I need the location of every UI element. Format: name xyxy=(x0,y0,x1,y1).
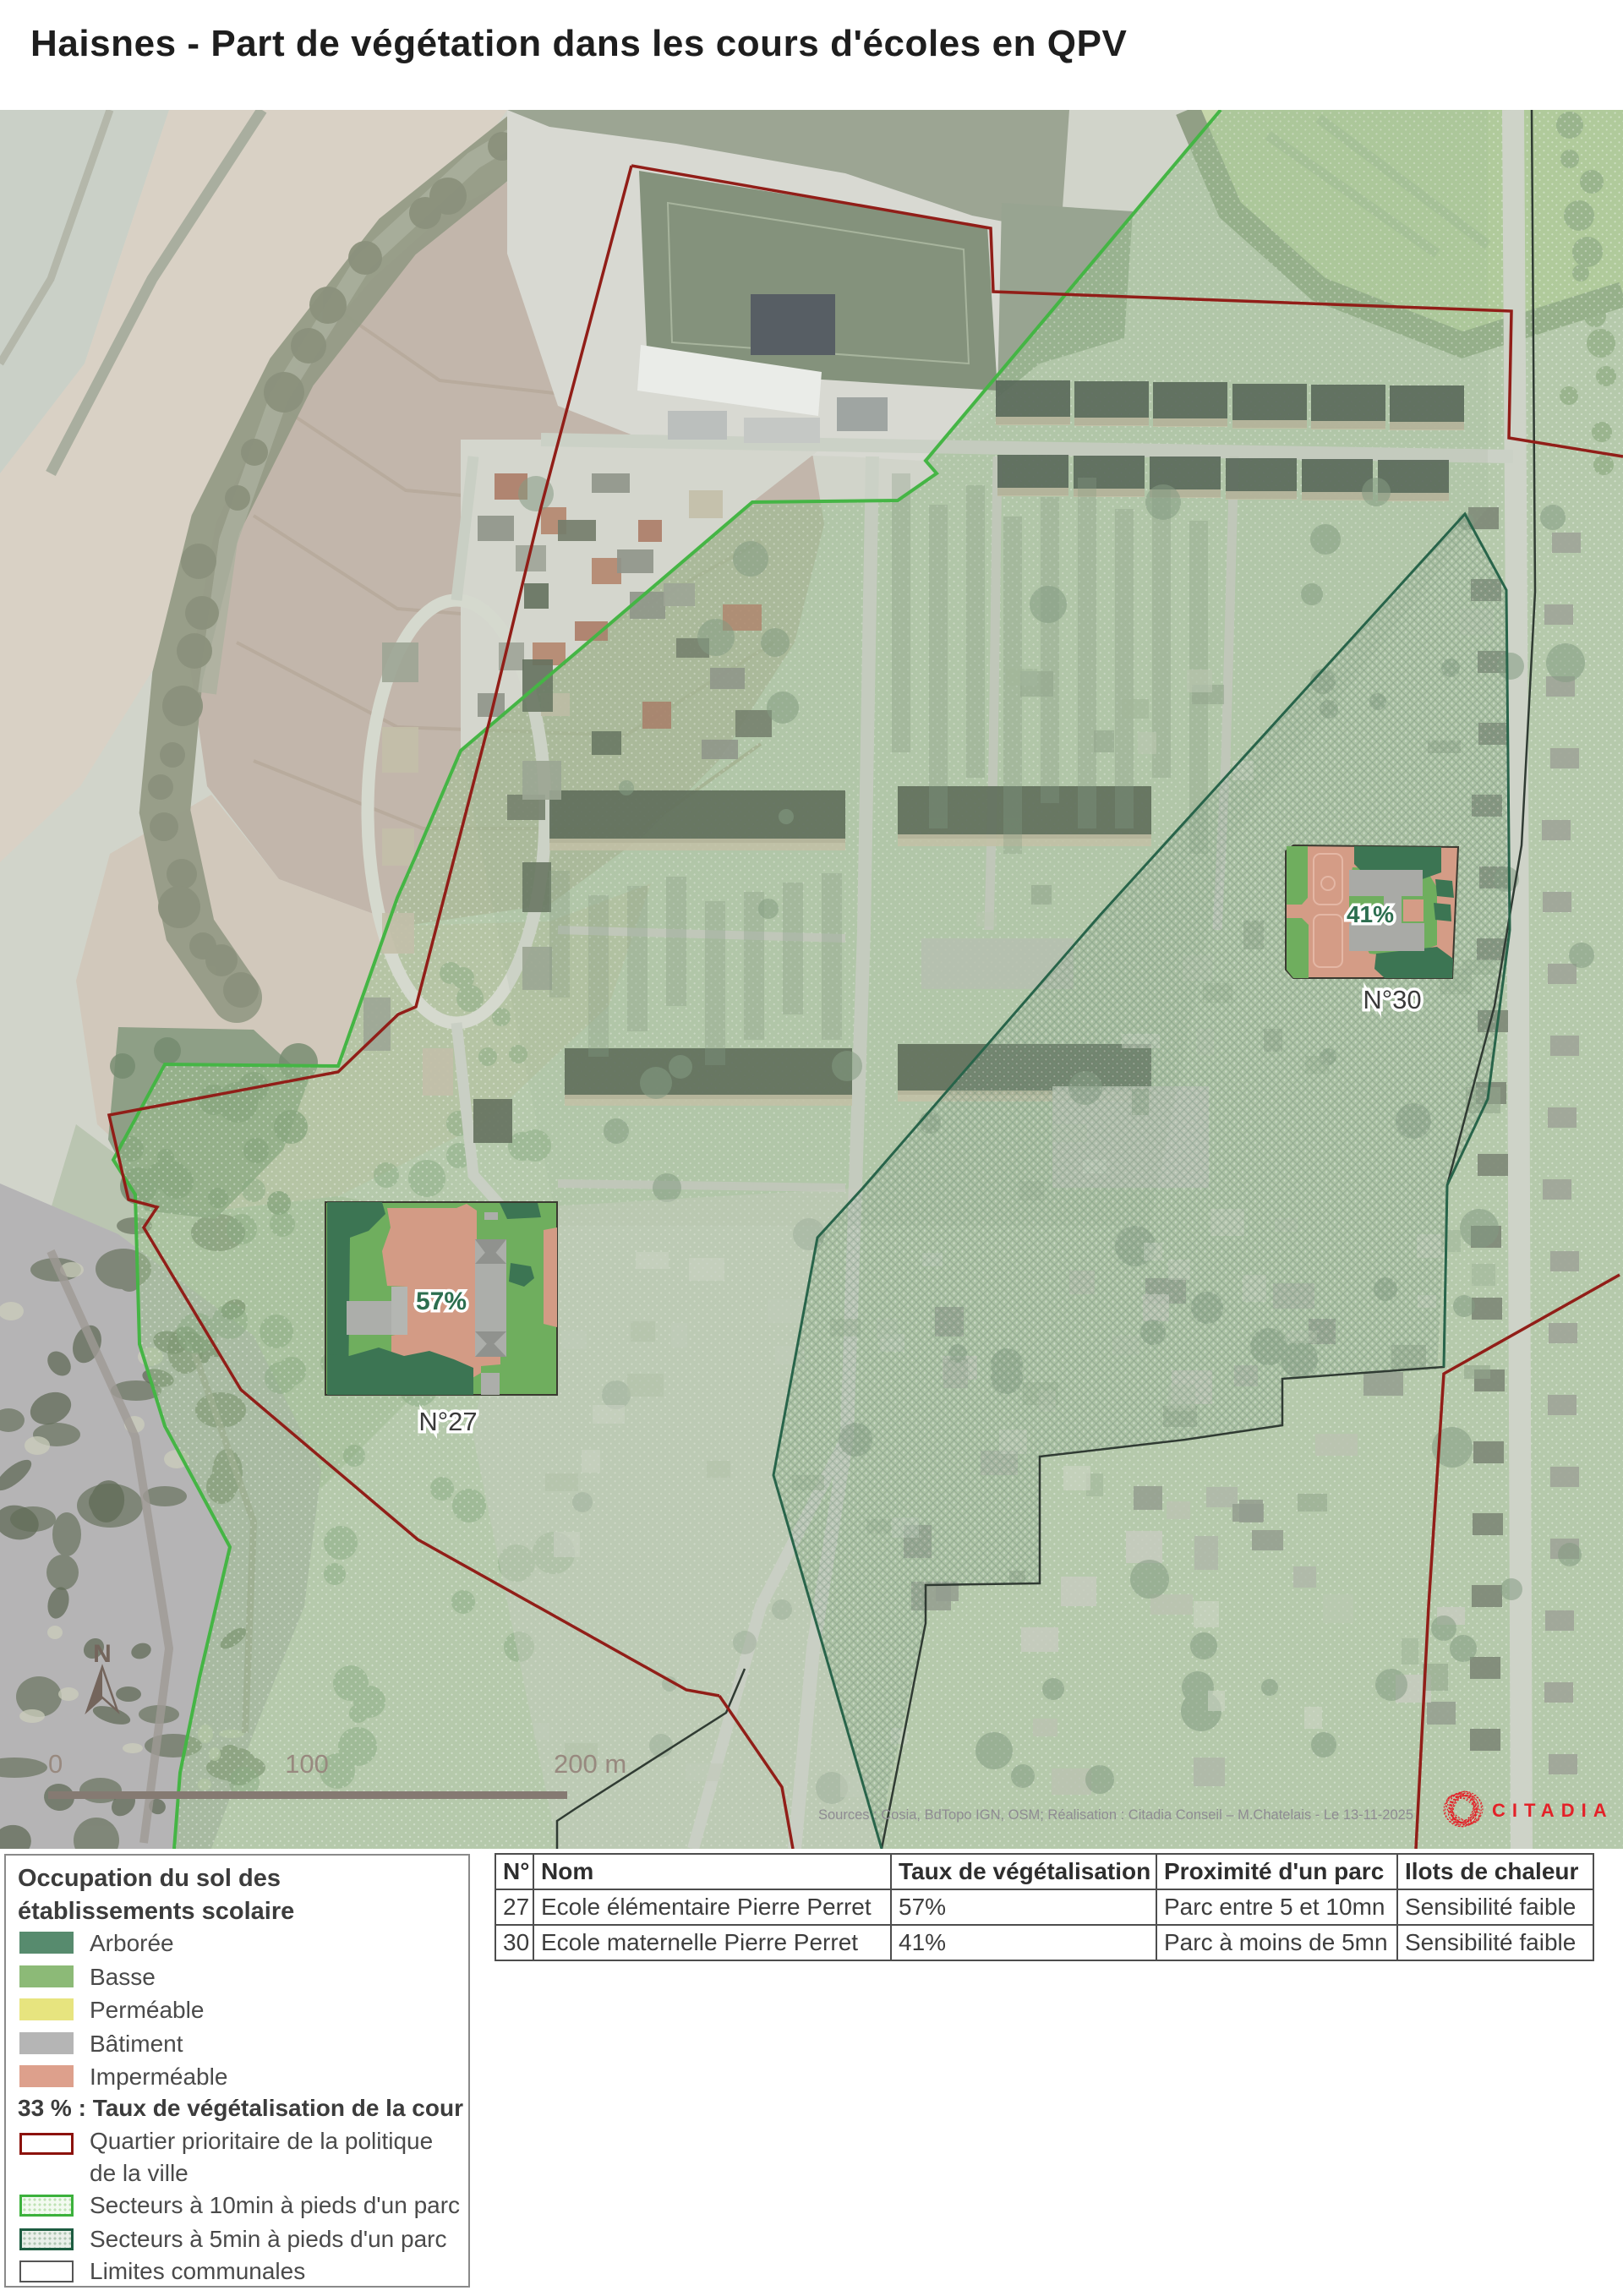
svg-text:N°30: N°30 xyxy=(1363,985,1421,1014)
svg-text:CITADIA: CITADIA xyxy=(1492,1800,1614,1821)
svg-text:N: N xyxy=(93,1640,112,1668)
svg-text:200 m: 200 m xyxy=(554,1749,626,1779)
svg-text:100: 100 xyxy=(285,1749,329,1779)
svg-text:41%: 41% xyxy=(1347,901,1394,927)
svg-text:N°27: N°27 xyxy=(418,1407,477,1436)
svg-text:Sources : Cosia, BdTopo IGN, O: Sources : Cosia, BdTopo IGN, OSM; Réalis… xyxy=(818,1807,1413,1823)
svg-text:57%: 57% xyxy=(416,1287,467,1315)
svg-text:0: 0 xyxy=(48,1749,63,1779)
